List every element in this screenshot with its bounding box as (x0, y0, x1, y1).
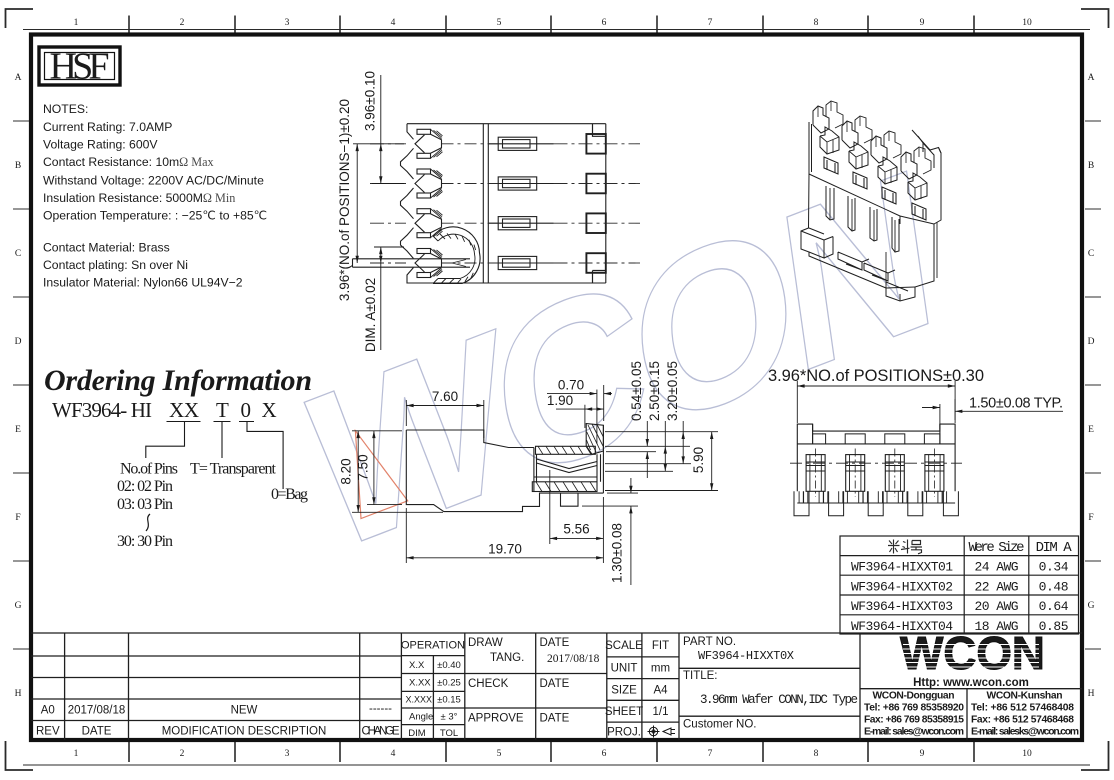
svg-text:WF3964-HIXXT01: WF3964-HIXXT01 (851, 560, 953, 575)
svg-text:G: G (15, 601, 22, 611)
svg-text:WCON-Dongguan: WCON-Dongguan (873, 691, 955, 702)
svg-text:DATE: DATE (82, 726, 112, 738)
svg-text:WF3964-HIXXT0X: WF3964-HIXXT0X (698, 649, 794, 663)
svg-text:D: D (15, 337, 22, 347)
svg-text:7.60: 7.60 (432, 389, 458, 404)
svg-text:B: B (1088, 161, 1094, 171)
svg-text:MODIFICATION DESCRIPTION: MODIFICATION DESCRIPTION (162, 726, 327, 738)
svg-text:1: 1 (74, 18, 79, 28)
svg-text:Contact Resistance: 10mΩ Ma: Contact Resistance: 10mΩ Max (43, 155, 214, 169)
svg-text:8.20: 8.20 (339, 458, 354, 484)
svg-text:DATE: DATE (540, 713, 570, 725)
svg-text:Withstand Voltage: 2200V AC: Withstand Voltage: 2200V AC/DC/Minute (43, 174, 264, 188)
svg-text:E-mail: sales@wcon.com: E-mail: sales@wcon.com (864, 727, 964, 738)
svg-text:B: B (15, 161, 21, 171)
svg-text:2017/08/18: 2017/08/18 (68, 705, 126, 717)
svg-text:T= Transparent: T= Transparent (190, 461, 277, 478)
svg-text:Insulator Material: Nylon66: Insulator Material: Nylon66 UL94V−2 (43, 276, 243, 290)
svg-text:NOTES:: NOTES: (43, 102, 88, 116)
svg-text:19.70: 19.70 (488, 542, 522, 557)
svg-text:1.90: 1.90 (547, 393, 573, 408)
svg-text:DIM A: DIM A (1036, 540, 1073, 556)
svg-text:3: 3 (285, 18, 290, 28)
svg-text:PART NO.: PART NO. (683, 636, 736, 648)
svg-text:3: 3 (285, 749, 290, 759)
svg-text:8: 8 (814, 749, 819, 759)
svg-text:24 AWG: 24 AWG (975, 560, 1019, 575)
svg-text:F: F (15, 513, 20, 523)
svg-text:Operation Temperature: : −2: Operation Temperature: : −25℃ to +85℃ (43, 209, 267, 223)
svg-text:7.50: 7.50 (356, 454, 371, 480)
svg-text:A4: A4 (653, 685, 668, 697)
svg-text:X.XXX: X.XXX (406, 695, 433, 705)
svg-text:Were Size: Were Size (969, 540, 1025, 556)
svg-text:Tel: +86 769 85358920: Tel: +86 769 85358920 (864, 703, 964, 714)
svg-text:HSF: HSF (50, 46, 110, 88)
svg-text:Tel: +86 512 57468408: Tel: +86 512 57468408 (971, 703, 1074, 714)
svg-text:H: H (1088, 689, 1095, 699)
svg-text:Voltage Rating: 600V: Voltage Rating: 600V (43, 138, 158, 152)
svg-text:1.50±0.08 TYP.: 1.50±0.08 TYP. (969, 396, 1063, 412)
svg-text:WCON-Kunshan: WCON-Kunshan (987, 691, 1063, 702)
svg-text:8: 8 (814, 18, 819, 28)
svg-text:Fax: +86 769 85358915: Fax: +86 769 85358915 (864, 715, 964, 726)
svg-text:Contact Material: Brass: Contact Material: Brass (43, 241, 170, 255)
svg-text:3.96*(NO.of POSITIONS−1)±0.20: 3.96*(NO.of POSITIONS−1)±0.20 (337, 99, 352, 301)
svg-text:mm: mm (651, 663, 670, 675)
svg-text:Http: www.wcon.com: Http: www.wcon.com (913, 677, 1029, 689)
svg-text:TOL: TOL (440, 728, 458, 739)
svg-text:3.20±0.05: 3.20±0.05 (665, 361, 680, 421)
svg-text:E: E (15, 425, 21, 435)
svg-text:No.of Pins: No.of Pins (120, 461, 178, 478)
svg-text:Current Rating: 7.0AMP: Current Rating: 7.0AMP (43, 120, 172, 134)
svg-text:2: 2 (180, 18, 185, 28)
svg-text:C: C (15, 249, 21, 259)
svg-text:DATE: DATE (540, 678, 570, 690)
svg-text:Insulation Resistance: 5000M: Insulation Resistance: 5000MΩ Min (43, 191, 235, 205)
svg-text:DIM. A±0.02: DIM. A±0.02 (363, 278, 378, 352)
svg-text:------: ------ (369, 703, 392, 715)
svg-text:OPERATION: OPERATION (401, 640, 465, 652)
svg-text:5.56: 5.56 (563, 522, 589, 537)
svg-text:5: 5 (497, 749, 502, 759)
svg-text:4: 4 (391, 18, 396, 28)
svg-text:SHEET: SHEET (605, 706, 643, 718)
svg-text:10: 10 (1022, 18, 1032, 28)
svg-text:A0: A0 (41, 705, 55, 717)
svg-text:4: 4 (391, 749, 396, 759)
svg-text:0.48: 0.48 (1039, 579, 1069, 594)
svg-text:NEW: NEW (231, 705, 258, 717)
svg-text:T: T (216, 398, 229, 422)
svg-text:2017/08/18: 2017/08/18 (547, 653, 600, 665)
svg-text:7: 7 (708, 749, 713, 759)
svg-text:X.X: X.X (409, 660, 425, 671)
svg-text:SCALE: SCALE (605, 640, 643, 652)
svg-text:0.85: 0.85 (1039, 619, 1069, 634)
svg-text:Contact plating: Sn over N: Contact plating: Sn over Ni (43, 258, 188, 272)
svg-text:FIT: FIT (652, 640, 669, 652)
svg-text:03: 03 Pin: 03: 03 Pin (117, 496, 173, 513)
svg-text:3.96*NO.of POSITIONS±0.30: 3.96*NO.of POSITIONS±0.30 (768, 367, 984, 385)
svg-text:DATE: DATE (540, 637, 570, 649)
svg-text:DRAW: DRAW (468, 637, 503, 649)
svg-text:22 AWG: 22 AWG (975, 579, 1019, 594)
svg-text:0.54±0.05: 0.54±0.05 (629, 361, 644, 421)
svg-text:6: 6 (602, 18, 607, 28)
svg-text:6: 6 (602, 749, 607, 759)
svg-text:X: X (262, 398, 277, 422)
svg-text:10: 10 (1022, 749, 1032, 759)
svg-text:Fax: +86 512 57468468: Fax: +86 512 57468468 (971, 715, 1074, 726)
svg-text:2.50±0.15: 2.50±0.15 (647, 361, 662, 421)
svg-text:± 3°: ± 3° (441, 712, 458, 723)
svg-text:±0.40: ±0.40 (437, 660, 461, 671)
svg-text:0=Bag: 0=Bag (271, 486, 308, 503)
svg-text:0.64: 0.64 (1039, 599, 1069, 614)
svg-text:20 AWG: 20 AWG (975, 599, 1019, 614)
svg-text:WF3964-HIXXT03: WF3964-HIXXT03 (851, 599, 953, 614)
svg-text:1.30±0.08: 1.30±0.08 (610, 523, 625, 583)
svg-text:9: 9 (920, 749, 925, 759)
svg-text:2: 2 (180, 749, 185, 759)
svg-text:1/1: 1/1 (653, 706, 669, 718)
svg-text:E-mail: salesks@wcon.com: E-mail: salesks@wcon.com (971, 727, 1079, 738)
svg-text:Angle: Angle (409, 712, 433, 723)
svg-text:A: A (1088, 73, 1095, 83)
svg-text:A: A (15, 73, 22, 83)
svg-text:D: D (1088, 337, 1095, 347)
svg-text:REV: REV (36, 726, 60, 738)
svg-text:CHANGE: CHANGE (362, 726, 400, 738)
svg-text:02: 02 Pin: 02: 02 Pin (117, 478, 173, 495)
svg-text:SIZE: SIZE (611, 685, 637, 697)
svg-text:F: F (1088, 513, 1093, 523)
svg-text:UNIT: UNIT (611, 663, 638, 675)
svg-text:0.70: 0.70 (558, 378, 584, 393)
svg-text:H: H (15, 689, 22, 699)
svg-text:5: 5 (497, 18, 502, 28)
svg-text:APPROVE: APPROVE (468, 713, 524, 725)
svg-text:X.XX: X.XX (409, 678, 431, 689)
svg-text:C: C (1088, 249, 1094, 259)
svg-text:3.96±0.10: 3.96±0.10 (363, 71, 378, 131)
svg-text:XX: XX (169, 398, 199, 422)
svg-text:±0.25: ±0.25 (437, 678, 461, 689)
svg-text:0: 0 (241, 398, 252, 422)
svg-text:E: E (1088, 425, 1094, 435)
svg-text:CHECK: CHECK (468, 678, 509, 690)
svg-text:0.34: 0.34 (1039, 560, 1069, 575)
svg-text:DIM: DIM (408, 728, 426, 739)
svg-text:1: 1 (74, 749, 79, 759)
svg-text:G: G (1088, 601, 1095, 611)
svg-text:TITLE:: TITLE: (683, 670, 718, 682)
svg-text:WF3964-HIXXT02: WF3964-HIXXT02 (851, 579, 953, 594)
svg-text:WF3964- HI: WF3964- HI (52, 398, 152, 422)
svg-text:9: 9 (920, 18, 925, 28)
svg-text:PROJ.: PROJ. (607, 727, 641, 739)
svg-text:Customer NO.: Customer NO. (683, 719, 757, 731)
svg-text:3.96mm Wafer CONN,IDC Type: 3.96mm Wafer CONN,IDC Type (700, 693, 858, 707)
svg-text:TANG.: TANG. (490, 652, 524, 664)
svg-text:7: 7 (708, 18, 713, 28)
svg-text:30: 30 Pin: 30: 30 Pin (117, 533, 173, 550)
svg-text:Ordering Information: Ordering Information (44, 364, 312, 397)
svg-text:±0.15: ±0.15 (437, 695, 461, 706)
svg-text:5.90: 5.90 (691, 447, 706, 473)
